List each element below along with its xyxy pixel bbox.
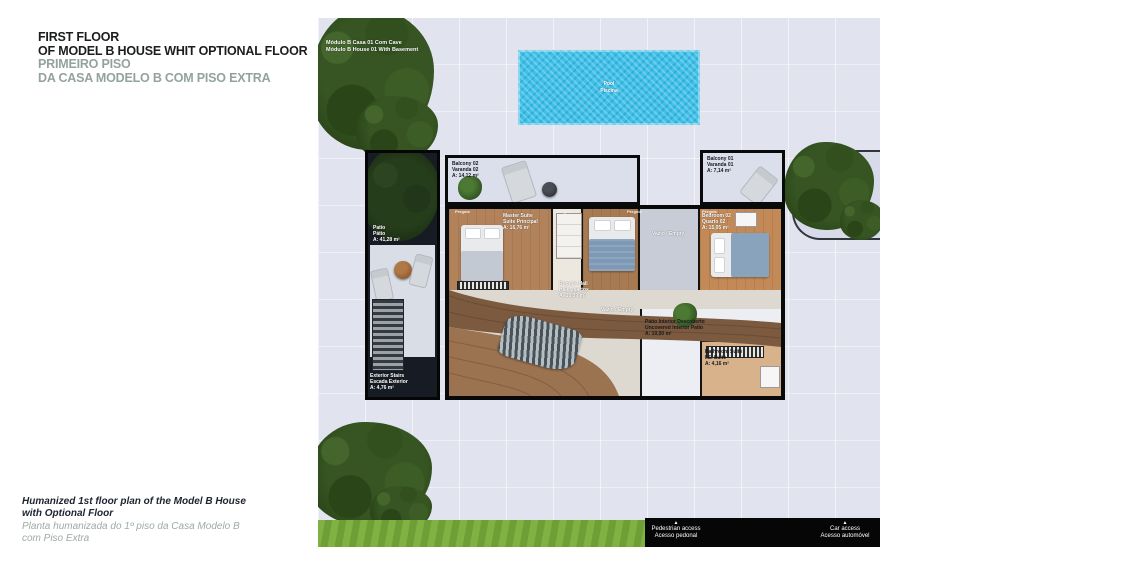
room-label-exterior-stairs: Exterior Stairs Escada Exterior A: 4,76 … [370,373,408,392]
module-label: Módulo B Casa 01 Com Cave Módulo B House… [326,40,418,54]
left-wing: Patio Pátio A: 41,28 m² Exterior Stairs … [365,150,440,400]
exterior-stairs [372,299,404,371]
floor-plan: Módulo B Casa 01 Com Cave Módulo B House… [318,18,880,547]
pedestrian-access-en: Pedestrian access [634,526,718,533]
label-line: A: 7,14 m² [707,168,733,174]
pergola-label-1: Pérgola [455,209,470,214]
label-line: A: 16,76 m² [503,225,538,231]
title-pt-line1: PRIMEIRO PISO [38,58,307,72]
title-pt-line2: DA CASA MODELO B COM PISO EXTRA [38,72,307,86]
pool: Pool Piscina [518,50,700,125]
room-label-bathroom-suite: Bathroom Suite I.S. Suite A: 4,16 m² [705,349,742,368]
page-canvas: FIRST FLOOR OF MODEL B HOUSE WHIT OPTION… [0,0,1135,568]
balcony02-lounger [501,160,537,204]
pergola-label-4: Pérgola [702,209,717,214]
title-block: FIRST FLOOR OF MODEL B HOUSE WHIT OPTION… [38,31,307,85]
room-label-balcony01: Balcony 01 Varanda 01 A: 7,14 m² [707,156,733,175]
pedestrian-access-pt: Acesso pedonal [634,533,718,540]
label-line: A: 15,05 m² [702,225,731,231]
pool-label-line2: Piscina [600,88,618,95]
pedestrian-access-label: ▲ Pedestrian access Acesso pedonal [634,520,718,540]
curved-hall-deck-graphic [449,209,781,396]
balcony-02: Balcony 02 Varanda 02 A: 14,12 m² [445,155,640,205]
car-access-label: ▲ Car access Acesso automóvel [803,520,880,540]
room-label-patio: Patio Pátio A: 41,28 m² [373,225,400,244]
caption-en-line2: with Optional Floor [22,508,246,520]
car-access-en: Car access [803,526,880,533]
caption-pt-line1: Planta humanizada do 1º piso da Casa Mod… [22,521,246,533]
room-label-master-suite: Master Suite Suite Principal A: 16,76 m² [503,213,538,232]
title-en-line1: FIRST FLOOR [38,31,307,45]
balcony01-lounger [739,165,779,205]
title-en-line2: OF MODEL B HOUSE WHIT OPTIONAL FLOOR [38,45,307,59]
pool-label: Pool Piscina [600,81,618,94]
balcony-01: Balcony 01 Varanda 01 A: 7,14 m² [700,150,785,205]
label-line: A: 4,16 m² [705,361,742,367]
tree-right-2 [840,200,880,240]
label-line: A: 10,50 m² [645,331,705,337]
caption-en-line1: Humanized 1st floor plan of the Model B … [22,496,246,508]
room-label-rooms-hall: Room's Hall Hall Quartos A: 10,39 m² [559,281,589,300]
module-label-line2: Módulo B House 01 With Basement [326,47,418,54]
pergola-label-2: Pérgola [557,209,572,214]
caption-pt-line2: com Piso Extra [22,533,246,545]
label-line: A: 10,39 m² [559,293,589,299]
module-label-line1: Módulo B Casa 01 Com Cave [326,40,418,47]
grass-strip [318,520,652,547]
room-label-balcony02: Balcony 02 Varanda 02 A: 14,12 m² [452,161,479,180]
car-access-pt: Acesso automóvel [803,533,880,540]
pergola-label-3: Pérgola [627,209,642,214]
label-line: A: 14,12 m² [452,173,479,179]
building-body: Pérgola Pérgola Pérgola Pérgola Master S… [445,205,785,400]
room-label-empty-b: Vazio / Empty [601,307,633,313]
label-line: A: 4,76 m² [370,385,408,391]
room-label-interior-patio: Pátio Interior Descoberto Uncovered Inte… [645,319,705,338]
room-label-bedroom02: Bedroom 02 Quarto 02 A: 15,05 m² [702,213,731,232]
balcony02-table [542,182,557,197]
caption-block: Humanized 1st floor plan of the Model B … [22,496,246,545]
room-label-empty-a: Vazio / Empty [652,231,684,237]
label-line: A: 41,28 m² [373,237,400,243]
